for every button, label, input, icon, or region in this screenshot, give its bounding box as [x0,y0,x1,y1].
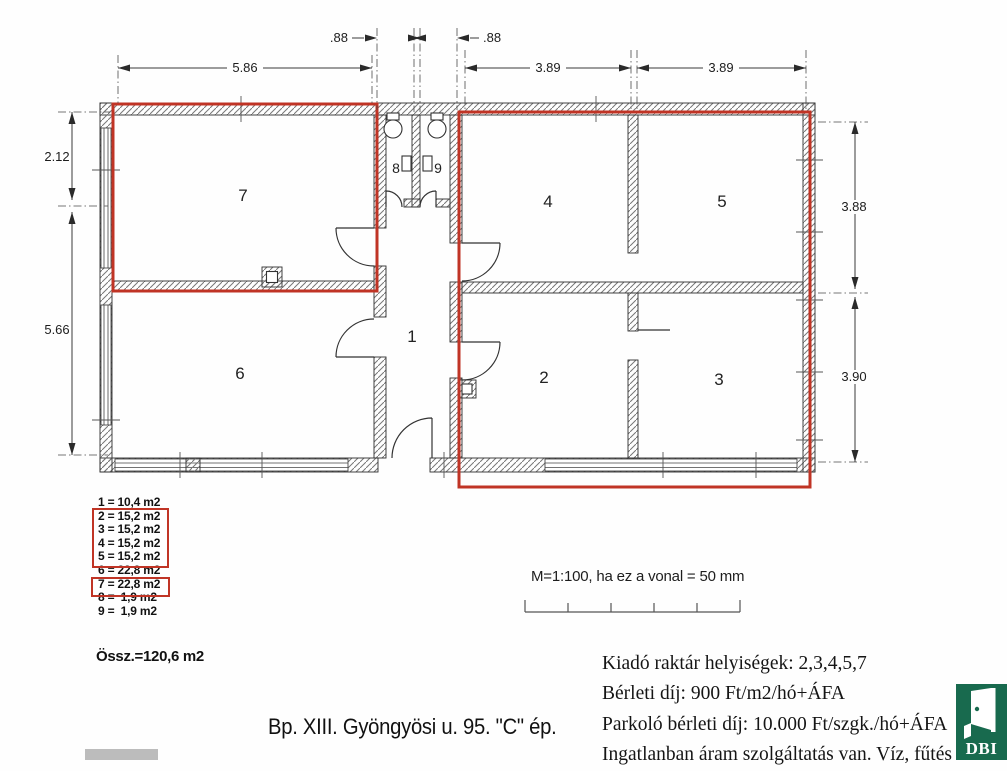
wall-room2-3-stub [628,293,638,331]
room-label-7: 7 [238,186,247,205]
wall-wc-divider [412,115,420,207]
dim-top-small-right: .88 [483,30,501,45]
room-label-9: 9 [434,160,442,176]
door-room2 [462,342,500,380]
dim-top-left: 5.86 [232,60,257,75]
dim-top-mid: 3.89 [535,60,560,75]
room-label-1: 1 [407,327,416,346]
wall-wc-bottom-right [436,199,450,207]
wall-right-block-middle [462,282,803,293]
door-room4 [462,243,500,281]
scanned-floor-plan-page: { "colors": { "highlight_red": "#c03425"… [0,0,1007,760]
dim-top-small-left: .88 [330,30,348,45]
page-title: Bp. XIII. Gyöngyösi u. 95. "C" ép. [268,714,557,740]
wall-pier-bottom [186,458,200,472]
logo-text: DBI [956,739,1007,759]
room-label-6: 6 [235,364,244,383]
room-label-4: 4 [543,192,552,211]
toilet-tank-9 [431,113,443,120]
info-line: Ingatlanban áram szolgáltatás van. Víz, … [602,740,1007,770]
dbi-logo: DBI [956,684,1007,760]
dim-right-upper: 3.88 [841,199,866,214]
dim-left-upper: 2.12 [44,149,69,164]
wall-corridor-left-3 [374,357,386,458]
window-left-lower [101,305,111,425]
scale-note: M=1:100, ha ez a vonal = 50 mm [531,568,744,585]
room-label-3: 3 [714,370,723,389]
wall-room4-5-divider [628,115,638,253]
dim-top-right: 3.89 [708,60,733,75]
window-bottom-right [545,459,797,471]
legend-row: 9 = 1,9 m2 [98,605,208,619]
doors [336,191,500,458]
room-label-5: 5 [717,192,726,211]
dim-left-lower: 5.66 [44,322,69,337]
door-wc8 [386,191,402,207]
wall-wc-bottom-center [404,199,420,207]
room-labels: 1 2 3 4 5 6 7 8 9 [235,160,726,389]
room-label-8: 8 [392,160,400,176]
toilet-tank-8 [387,113,399,120]
info-line: Parkoló bérleti díj: 10.000 Ft/szgk./hó+… [602,710,1007,740]
window-left-upper [101,128,111,268]
sink-9 [423,156,432,171]
total-area: Össz.=120,6 m2 [96,648,204,665]
legend-highlight-rooms-2345 [92,508,169,568]
info-line: Bérleti díj: 900 Ft/m2/hó+ÁFA [602,679,1007,709]
window-bottom-left [115,459,348,471]
windows [101,128,797,472]
door-room7 [336,228,374,266]
room-label-2: 2 [539,368,548,387]
sink-8 [402,156,411,171]
toilet-bowl-8 [384,120,402,138]
info-line: Kiadó raktár helyiségek: 2,3,4,5,7 [602,649,1007,679]
rental-info: Kiadó raktár helyiségek: 2,3,4,5,7 Bérle… [602,649,1007,771]
dim-right-lower: 3.90 [841,369,866,384]
door-room6 [336,319,374,357]
legend-highlight-room-7 [91,577,170,597]
scan-artifact [85,749,158,760]
door-entrance [392,418,432,458]
wall-room2-3-divider [628,360,638,458]
fixtures [262,113,476,398]
door-wc9 [420,191,436,207]
scale-bar: M=1:100, ha ez a vonal = 50 mm [525,568,744,612]
toilet-bowl-9 [428,120,446,138]
